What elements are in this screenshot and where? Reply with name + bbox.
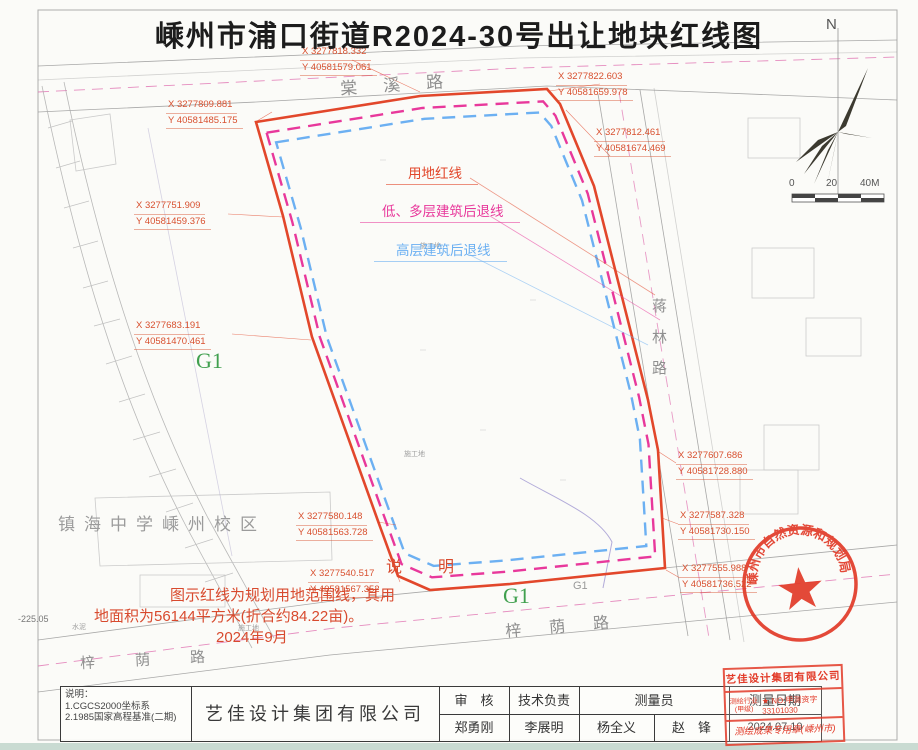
company-name: 艺佳设计集团有限公司	[191, 687, 439, 741]
cement-label: 水泥	[72, 622, 86, 632]
site-label-3: 施工地	[404, 449, 425, 459]
coord-x: X 3277580.148	[296, 510, 367, 526]
note-line-1: 图示红线为规划用地范围线，其用	[170, 584, 395, 605]
zone-label-g1-small: G1	[573, 580, 588, 592]
certification-stamp: 艺佳设计集团有限公司 测绘行业 (甲级) ★ NO:甲测资字33101030 测…	[723, 664, 846, 746]
stamp-cert-row: 测绘行业 (甲级) ★ NO:甲测资字33101030	[726, 689, 843, 722]
coord-label: X 3277812.461Y 40581674.469	[594, 126, 671, 157]
coord-x: X 3277555.988	[680, 562, 751, 578]
legend-low-setback-label: 低、多层建筑后退线	[360, 200, 520, 223]
stamp-industry-label: 测绘行业	[726, 697, 762, 706]
stamp-industry: 测绘行业 (甲级)	[726, 697, 763, 714]
coord-label: X 3277683.191Y 40581470.461	[134, 319, 211, 350]
stamp-grade: (甲级)	[726, 705, 762, 714]
coord-x: X 3277822.603	[556, 70, 627, 86]
note-line-3: 2024年9月	[216, 626, 288, 647]
title-block: 说明： 1.CGCS2000坐标系 2.1985国家高程基准(二期) 艺佳设计集…	[60, 686, 822, 742]
legend-high-setback-label: 高层建筑后退线	[374, 239, 507, 262]
coord-y: Y 40581470.461	[134, 335, 211, 351]
coord-label: X 3277809.881Y 40581485.175	[166, 98, 243, 129]
value-surveyor-2: 赵 锋	[654, 714, 729, 741]
left-road-lines	[42, 82, 274, 648]
coord-label: X 3277587.328Y 40581730.150	[678, 509, 755, 540]
titleblock-note-coordinate-system: 1.CGCS2000坐标系	[65, 701, 176, 713]
titleblock-notes-label: 说明：	[65, 689, 176, 701]
coord-x: X 3277540.517	[308, 567, 379, 583]
scale-end-label: 40M	[860, 178, 879, 189]
legend-redline-label: 用地红线	[386, 162, 478, 185]
basemap: 嵊州市自然资源和规划局	[0, 0, 918, 750]
coord-y: Y 40581674.469	[594, 142, 671, 158]
stamp-cert-no: ★ NO:甲测资字33101030	[762, 692, 843, 715]
value-reviewer: 郑勇刚	[439, 714, 509, 741]
coord-y: Y 40581579.061	[300, 61, 377, 77]
coord-label: X 3277822.603Y 40581659.978	[556, 70, 633, 101]
coord-label: X 3277751.909Y 40581459.376	[134, 199, 211, 230]
coord-x: X 3277587.328	[678, 509, 749, 525]
stamp-seal-name: 测绘成果专用章(嵊州市)	[727, 718, 844, 744]
school-label: 镇海中学嵊州校区	[58, 510, 266, 535]
coord-y: Y 40581485.175	[166, 114, 243, 130]
coord-x: X 3277607.686	[676, 449, 747, 465]
zone-label-g1-west: G1	[196, 348, 223, 374]
coord-x: X 3277751.909	[134, 199, 205, 215]
road-label-jianglin: 蒋林路	[648, 298, 669, 391]
coord-label: X 3277555.988Y 40581736.522	[680, 562, 757, 593]
coord-y: Y 40581563.728	[296, 526, 373, 542]
coord-x: X 3277809.881	[166, 98, 237, 114]
coord-y: Y 40581728.880	[676, 465, 753, 481]
note-heading: 说 明	[386, 553, 464, 577]
scale-bar	[792, 194, 884, 202]
header-reviewer: 审 核	[439, 687, 509, 714]
scanned-map-paper: 嵊州市自然资源和规划局 嵊州市浦口街道R2024-30号出让地块红线图 棠溪路 …	[0, 0, 918, 743]
coord-y: Y 40581736.522	[680, 578, 757, 594]
header-tech-lead: 技术负责	[509, 687, 579, 714]
school-boundary-line	[520, 478, 612, 588]
coord-y: Y 40581459.376	[134, 215, 211, 231]
scale-zero-label: 0	[789, 178, 795, 189]
scale-mid-label: 20	[826, 178, 837, 189]
note-line-2: 地面积为56144平方米(折合约84.22亩)。	[94, 605, 363, 626]
value-surveyor-1: 杨全义	[579, 714, 654, 741]
coord-y: Y 40581659.978	[556, 86, 633, 102]
coord-x: X 3277812.461	[594, 126, 665, 142]
titleblock-note-height-datum: 2.1985国家高程基准(二期)	[65, 712, 176, 724]
titleblock-notes: 说明： 1.CGCS2000坐标系 2.1985国家高程基准(二期)	[65, 689, 176, 724]
coord-label: X 3277580.148Y 40581563.728	[296, 510, 373, 541]
page-title: 嵊州市浦口街道R2024-30号出让地块红线图	[0, 13, 918, 55]
coord-x: X 3277683.191	[134, 319, 205, 335]
coord-y: Y 40581730.150	[678, 525, 755, 541]
elevation-label: -225.05	[18, 614, 49, 624]
value-tech-lead: 李展明	[509, 714, 579, 741]
zone-label-g1-south: G1	[503, 583, 530, 609]
header-surveyor: 测量员	[579, 687, 729, 714]
coord-label: X 3277607.686Y 40581728.880	[676, 449, 753, 480]
